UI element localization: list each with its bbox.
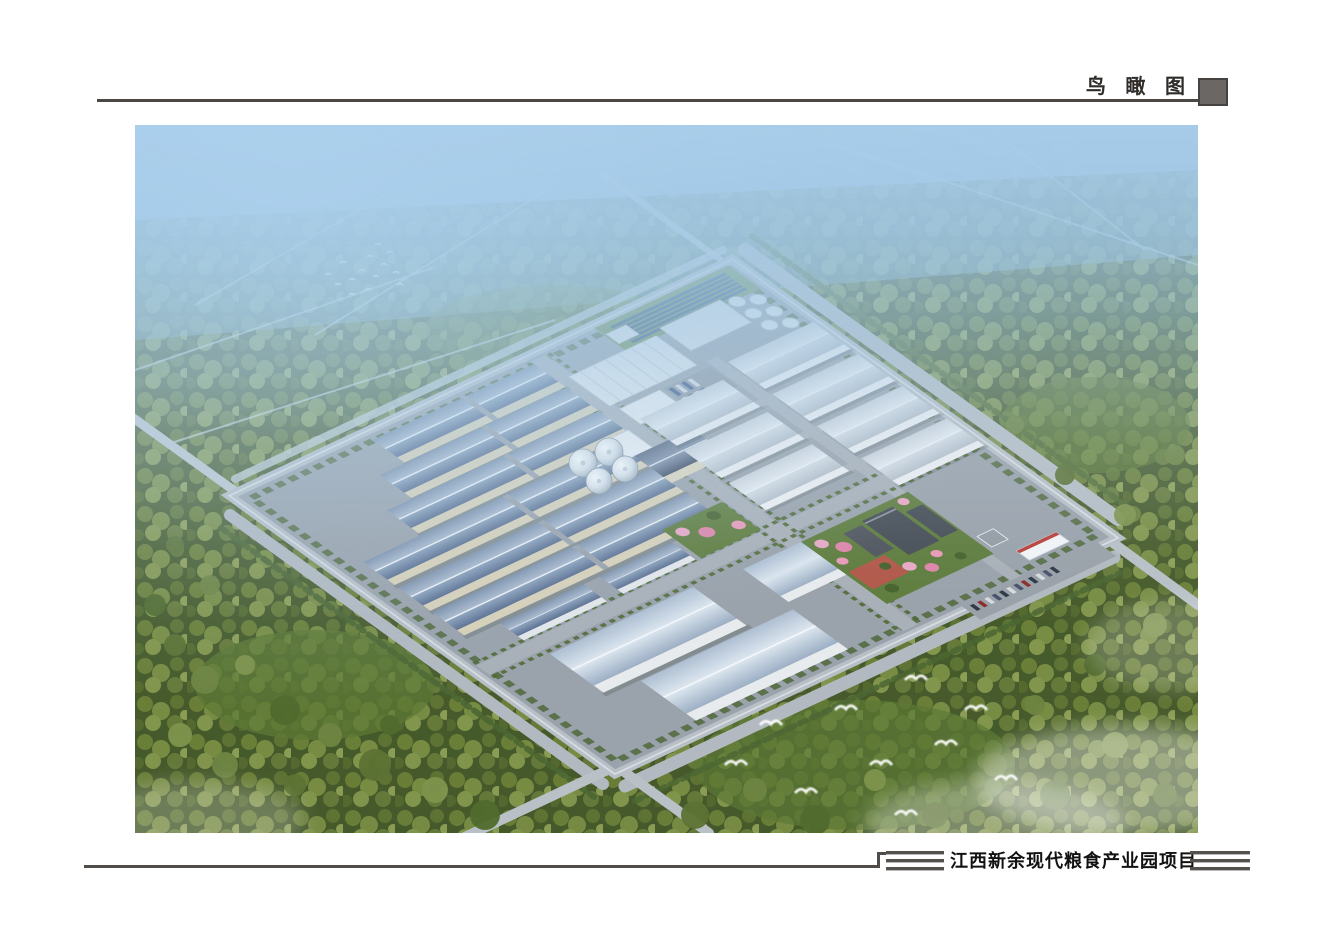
footer-stripes-right <box>1190 851 1250 872</box>
header-rule <box>97 99 1228 102</box>
footer-rule <box>84 865 877 868</box>
project-title: 江西新余现代粮食产业园项目 <box>950 849 1186 873</box>
footer-stripes-left <box>886 851 944 872</box>
haze-layer <box>135 125 1198 833</box>
header-accent-square <box>1198 78 1228 106</box>
page-title: 鸟 瞰 图 <box>0 74 1192 100</box>
aerial-rendering-image <box>135 125 1198 833</box>
footer-rule-step-top <box>877 852 886 855</box>
